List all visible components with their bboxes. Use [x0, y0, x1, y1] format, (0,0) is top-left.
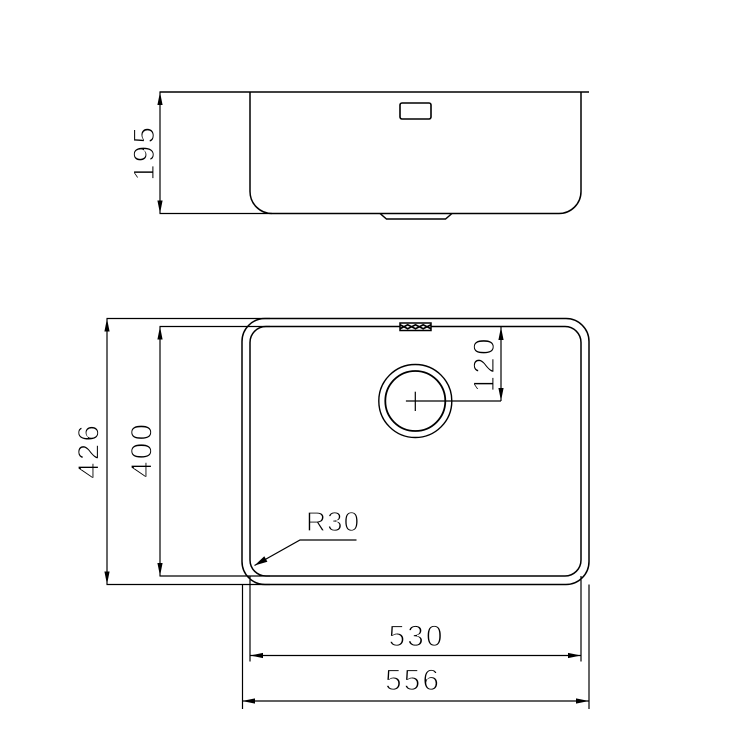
- svg-text:530: 530: [388, 620, 444, 653]
- svg-text:426: 426: [73, 423, 106, 479]
- svg-text:400: 400: [126, 422, 159, 478]
- svg-text:R30: R30: [306, 506, 360, 537]
- svg-text:556: 556: [385, 664, 441, 697]
- svg-text:195: 195: [128, 125, 161, 181]
- svg-text:120: 120: [468, 336, 501, 392]
